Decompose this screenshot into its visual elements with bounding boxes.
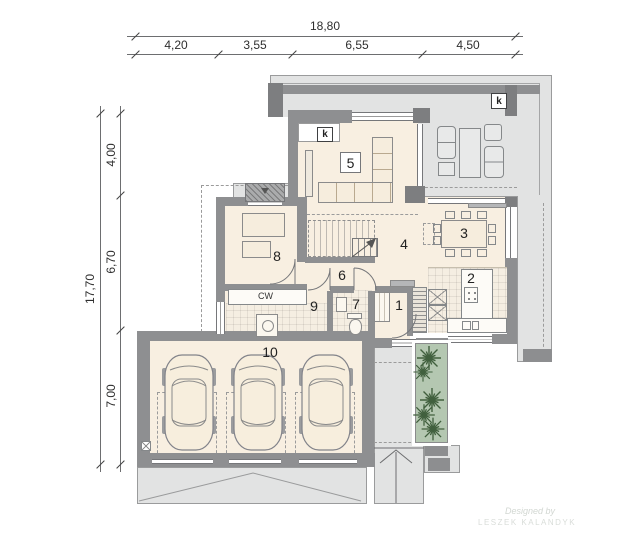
kitchen-sink-2 [472,321,479,330]
wc-toilet-bowl [349,319,362,335]
terrace-armchair [484,146,504,178]
corridor-wall-a [330,286,354,293]
dim-line-top-total [127,36,523,37]
garage-drain-box [141,441,151,451]
living-wall-left [288,123,298,205]
room8-wall-top-a [216,197,248,206]
garage-wall-top [137,331,372,341]
overhang-dashed-right [543,203,544,357]
stair-wall [305,257,375,263]
garage-door-2 [229,459,281,464]
cooktop [464,287,478,303]
dim-left-total: 17,70 [83,274,97,304]
room-number-9: 9 [310,298,318,314]
dim-line-left-total [100,106,101,472]
garage-wall-right [362,341,374,467]
room8-cabinet [242,241,271,258]
terrace-cube-chair [484,124,502,141]
walkway-dashed-lower [374,442,416,443]
room-number-5-box: 5 [340,152,361,173]
room-number-7: 7 [352,296,360,312]
living-wall-top [288,110,352,123]
dining-chair [461,211,471,219]
paving-block-right [523,349,552,362]
watermark-studio-name: LESZEK KALANDYK [478,518,576,527]
kitchen-window-bottom [448,336,492,343]
dining-chair [477,211,487,219]
dim-line-left-segments [120,106,121,472]
dim-top-seg3: 6,55 [345,38,368,52]
sofa-horizontal [318,182,393,203]
room-number-1: 1 [395,297,403,313]
tv-cabinet [305,150,313,197]
utility-window-left [216,302,225,334]
garage-wall-left [137,341,150,455]
dim-top-seg2: 3,55 [243,38,266,52]
room-number-2: 2 [467,270,475,286]
room8-bed [242,213,285,237]
dining-wall-seg [505,258,517,267]
fireplace-marker-living: k [317,127,333,142]
parking-spot-2 [226,392,286,458]
main-entrance-door [392,339,416,347]
driveway [137,467,367,504]
dim-left-seg3: 7,00 [104,384,118,407]
dining-chair [445,249,455,257]
living-pillar-se [405,186,425,203]
dim-line-top-segments [127,54,523,55]
dining-chair [461,249,471,257]
terrace-side-table [438,162,455,176]
parking-spot-1 [157,392,217,458]
room-number-3: 3 [460,225,468,241]
paving-block-low [428,458,450,471]
dim-top-seg4: 4,50 [456,38,479,52]
room-number-6: 6 [338,267,346,283]
chimney-arrow-icon [261,188,269,194]
entry-wall-a [372,338,392,348]
terrace-sofa [437,126,456,159]
dim-top-total: 18,80 [310,19,340,33]
overhang-dashed-terrace [420,187,517,188]
tall-cabinet-2 [428,305,447,321]
overhang-dashed-room4 [307,214,418,215]
kitchen-wall-bottom [492,334,517,344]
fridge-cabinet [412,287,427,333]
west-wall [216,206,225,302]
dining-chair [433,224,441,233]
living-terrace-door [417,124,423,186]
sideboard-dining [468,203,507,208]
dim-left-seg2: 6,70 [104,250,118,273]
dining-chair [488,236,496,245]
washing-machine-drum [262,320,274,332]
fireplace-marker-terrace-label: k [496,96,502,107]
dim-left-seg1: 4,00 [104,143,118,166]
dining-chair [488,224,496,233]
fireplace-marker-living-label: k [322,129,328,140]
planter-bed [415,343,448,443]
walkway-dashed-upper [374,362,416,363]
dining-chair [477,249,487,257]
overhang-dashed-left [201,185,202,332]
closet-cw-label: CW [258,291,273,301]
sideboard-room4 [390,280,415,287]
dim-top-seg1: 4,20 [164,38,187,52]
dining-chair [433,236,441,245]
living-pillar-ne [413,108,430,123]
tall-cabinet-1 [428,289,447,305]
kitchen-wall-right [507,267,517,337]
watermark-designed-by: Designed by [505,506,555,516]
garage-door-3 [299,459,357,464]
parking-spot-3 [295,392,355,458]
room-number-5: 5 [347,155,355,171]
kitchen-sink [462,321,471,330]
fireplace-marker-terrace: k [491,93,507,109]
living-window-top [352,112,413,121]
hall-wardrobe [374,292,390,322]
garage-door-1 [152,459,213,464]
dining-window-right [505,207,511,258]
room8-wall-right [297,203,307,262]
stairs-lower-steps [352,238,378,257]
terrace-table [459,128,481,178]
floor-plan: 5 1 2 3 4 6 7 8 9 10 k k CW 18,80 4,20 3… [0,0,638,556]
room-number-8: 8 [273,248,281,264]
wc-sink [336,297,347,312]
planter-block-2 [425,443,448,456]
paving-right-strip [517,196,552,362]
terrace-wall-block-left [268,83,283,117]
room-number-4: 4 [400,236,408,252]
room-number-10: 10 [262,344,278,360]
dining-chair [445,211,455,219]
